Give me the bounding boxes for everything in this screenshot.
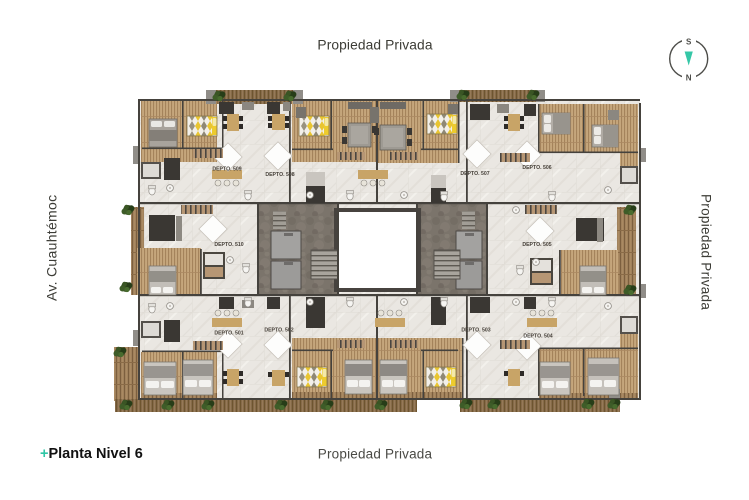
svg-text:Propiedad Privada: Propiedad Privada — [317, 38, 432, 53]
svg-text:N: N — [686, 74, 692, 83]
svg-text:DEPTO. 503: DEPTO. 503 — [461, 328, 490, 334]
svg-text:DEPTO. 505: DEPTO. 505 — [522, 242, 551, 248]
svg-text:DEPTO. 506: DEPTO. 506 — [522, 165, 551, 171]
svg-text:+Planta Nivel 6: +Planta Nivel 6 — [40, 446, 143, 462]
svg-text:DEPTO. 502: DEPTO. 502 — [264, 328, 293, 334]
svg-text:Av. Cuauhtémoc: Av. Cuauhtémoc — [44, 195, 60, 301]
svg-text:DEPTO. 510: DEPTO. 510 — [214, 242, 243, 248]
svg-text:DEPTO. 501: DEPTO. 501 — [214, 331, 243, 337]
svg-text:S: S — [686, 38, 692, 47]
svg-text:DEPTO. 507: DEPTO. 507 — [460, 171, 489, 177]
svg-text:DEPTO. 504: DEPTO. 504 — [523, 334, 552, 340]
svg-text:Propiedad Privada: Propiedad Privada — [699, 194, 714, 310]
svg-text:Propiedad Privada: Propiedad Privada — [318, 447, 433, 462]
svg-text:DEPTO. 508: DEPTO. 508 — [265, 172, 294, 178]
svg-text:DEPTO. 509: DEPTO. 509 — [212, 167, 241, 173]
